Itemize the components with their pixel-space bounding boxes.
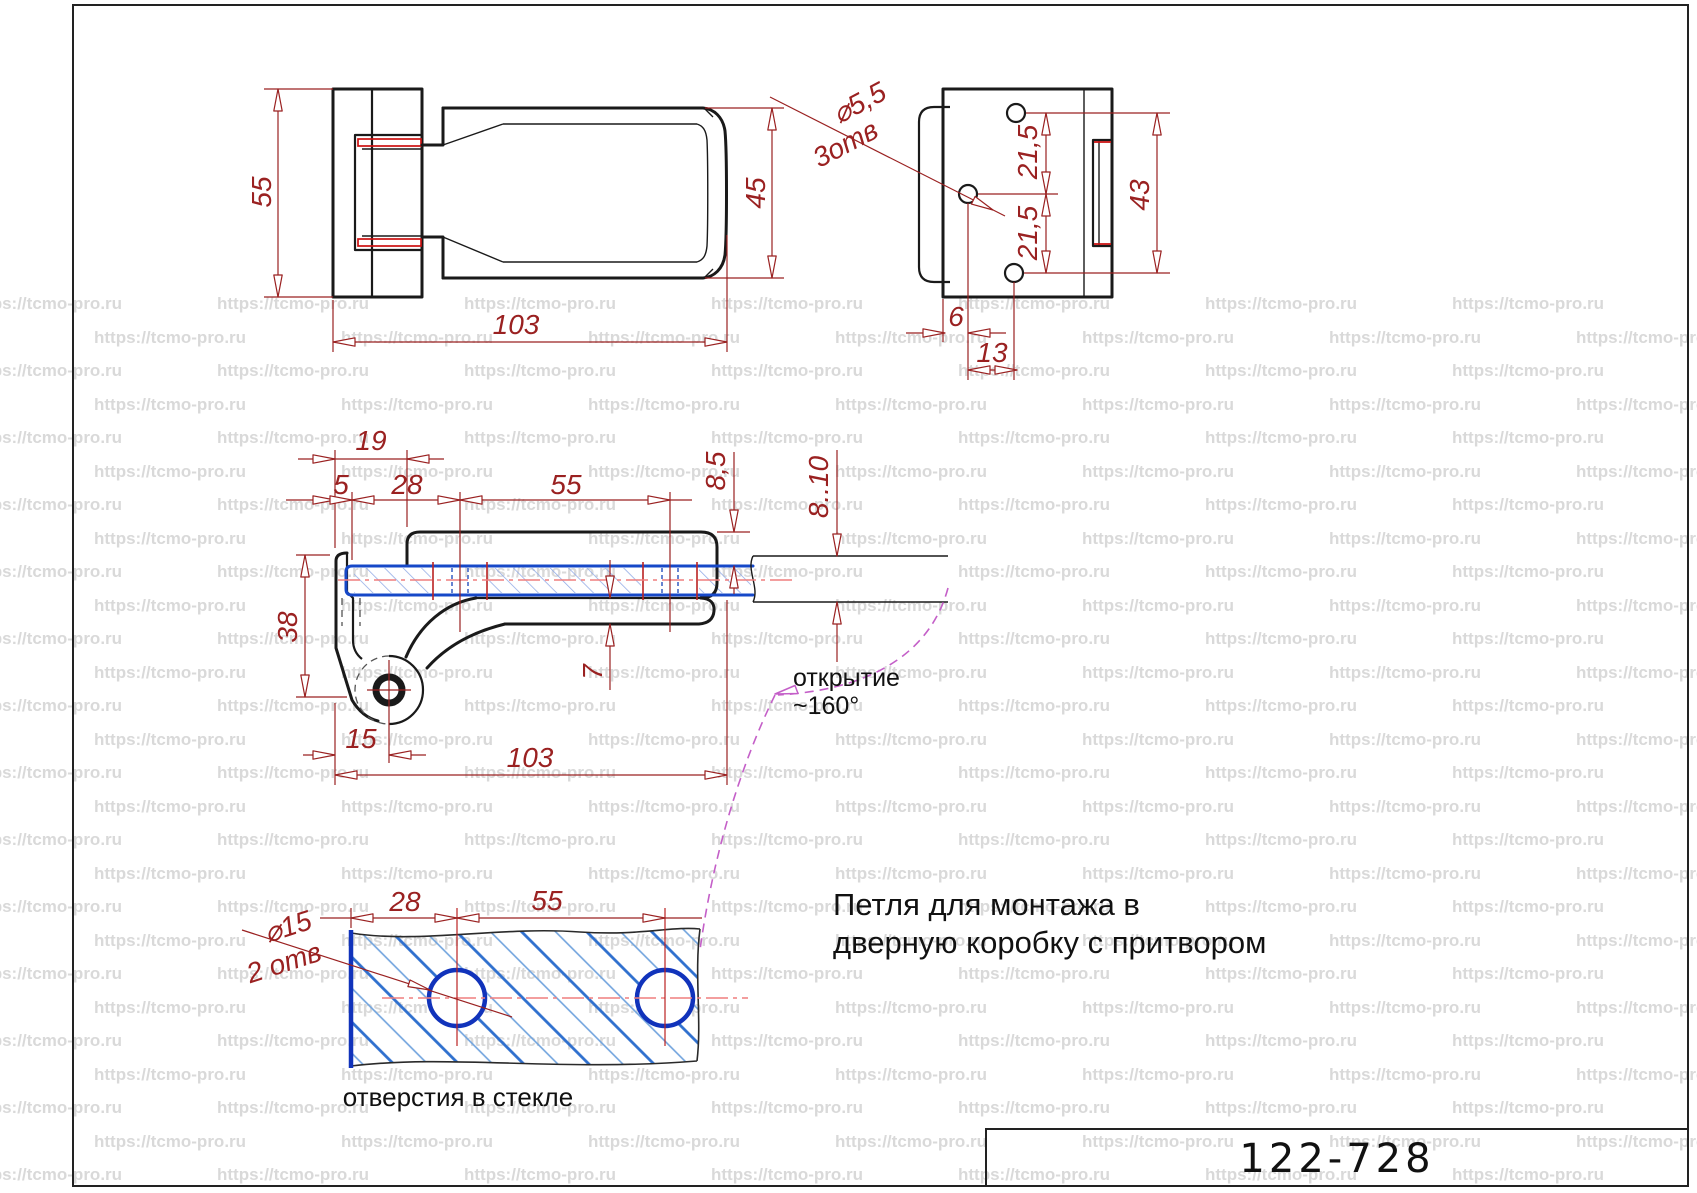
title-block: 122-728 bbox=[986, 1129, 1688, 1186]
sec-5-label: 5 bbox=[333, 469, 349, 500]
screw-hole-bottom bbox=[1005, 264, 1023, 282]
leaf-inner-cap bbox=[697, 124, 708, 262]
opening-angle-label: ~160° bbox=[793, 692, 859, 720]
leaf-inner-lines bbox=[443, 124, 697, 262]
sec-glass-label: 8..10 bbox=[803, 455, 834, 518]
glass-55-label: 55 bbox=[531, 885, 563, 916]
back-offset-x-label: 6 bbox=[948, 301, 964, 332]
drawing-sheet: https://tcmo-pro.ruhttps://tcmo-pro.ruht… bbox=[0, 0, 1697, 1193]
slot-gaskets bbox=[1094, 142, 1111, 244]
gasket-top bbox=[358, 139, 421, 146]
sec-clamp-label: 8,5 bbox=[700, 451, 731, 490]
arm-outer-curve bbox=[427, 624, 505, 668]
sec-38-label: 38 bbox=[272, 611, 303, 643]
back-pitch-bottom-label: 21,5 bbox=[1012, 205, 1043, 261]
sec-19-label: 19 bbox=[355, 425, 386, 456]
screw-phantom bbox=[342, 598, 360, 626]
dim-plan-width-label: 45 bbox=[740, 177, 771, 209]
screw-hole-top bbox=[1007, 104, 1025, 122]
back-pitch-top-label: 21,5 bbox=[1012, 124, 1043, 180]
arm-inner-curve bbox=[406, 598, 476, 657]
sec-15-label: 15 bbox=[345, 723, 377, 754]
opening-label: открытие bbox=[793, 664, 900, 692]
leader-arrow bbox=[971, 197, 993, 211]
leaf-plate-end bbox=[505, 598, 714, 624]
description-note: Петля для монтажа в дверную коробку с пр… bbox=[833, 887, 1266, 960]
frame-border bbox=[73, 5, 1688, 1186]
section-view: открытие ~160° 19 5 28 55 8,5 8..10 38 bbox=[272, 425, 948, 950]
leaf-outline bbox=[443, 108, 727, 278]
back-span-label: 43 bbox=[1124, 179, 1155, 211]
drawing-canvas: 55 103 45 ⌀5,5 3отв 21,5 21,5 bbox=[0, 0, 1697, 1193]
description-line1: Петля для монтажа в bbox=[833, 887, 1140, 922]
sec-7-label: 7 bbox=[577, 663, 608, 680]
back-offset-y-label: 13 bbox=[976, 337, 1008, 368]
dim-plan-length-label: 103 bbox=[493, 309, 540, 340]
gasket-bottom bbox=[358, 239, 421, 246]
part-number: 122-728 bbox=[1239, 1136, 1434, 1182]
u-channel bbox=[355, 135, 422, 250]
neck bbox=[422, 108, 443, 278]
sec-55-label: 55 bbox=[550, 469, 582, 500]
dim-plan-height-label: 55 bbox=[246, 176, 277, 208]
glass-caption: отверстия в стекле bbox=[343, 1082, 573, 1112]
glass-view: ⌀15 2 отв 28 55 отверстия в стекле bbox=[242, 885, 748, 1112]
slot bbox=[1093, 140, 1112, 246]
back-view: ⌀5,5 3отв 21,5 21,5 43 6 13 bbox=[770, 76, 1170, 380]
sec-length-label: 103 bbox=[507, 742, 554, 773]
leaf-end-silhouette bbox=[919, 107, 950, 282]
glass-28-label: 28 bbox=[388, 886, 421, 917]
sec-28-label: 28 bbox=[390, 469, 423, 500]
glass-continuation bbox=[753, 556, 948, 602]
frame-plate-outline bbox=[333, 89, 422, 297]
description-line2: дверную коробку с притвором bbox=[833, 925, 1266, 960]
sheet-frame bbox=[73, 5, 1688, 1186]
plan-view: 55 103 45 bbox=[246, 89, 784, 352]
